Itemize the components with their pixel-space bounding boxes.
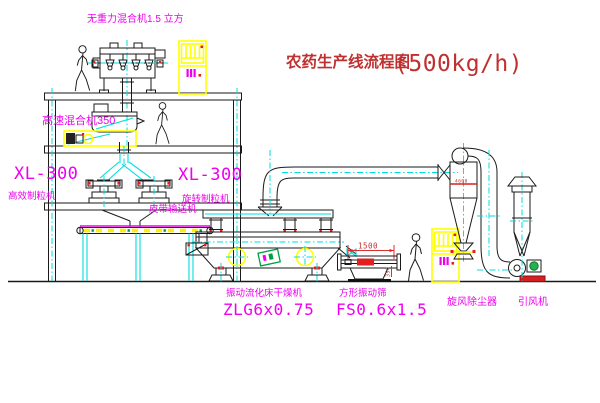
control-cabinet-lower: [432, 229, 459, 282]
label-high-speed-mixer: 高速混合机350: [42, 113, 115, 127]
label-cyclone: 旋风除尘器: [447, 295, 497, 308]
worker-figure-top-floor: [75, 46, 89, 91]
label-dryer-model: ZLG6x0.75: [223, 300, 314, 319]
granulator-left: [86, 176, 122, 207]
screen-length-dim: 1500: [358, 242, 378, 251]
cyclone-mark-text: 4600: [455, 179, 468, 185]
label-screen-name: 方形振动筛: [339, 287, 387, 299]
label-screen-model: FS0.6x1.5: [336, 300, 427, 319]
downcomer-duct: [477, 150, 514, 278]
label-granulator-right-model: XL-300: [178, 165, 242, 185]
worker-figure-ground: [409, 234, 424, 281]
label-granulator-left-name: 高效制粒机: [8, 190, 56, 202]
exhaust-elbow-duct: [258, 150, 294, 216]
label-fan: 引风机: [518, 295, 548, 308]
label-belt-conveyor: 皮带输送机: [149, 203, 197, 215]
under-floor-hopper: [102, 210, 156, 227]
cyclone-inlet-duct: [282, 164, 458, 181]
flow-diagram-page: 1500 350 4600: [0, 0, 600, 403]
granulator-right: [136, 176, 172, 207]
belt-conveyor: [77, 226, 213, 281]
page-title-capacity: (500kg/h): [394, 51, 523, 77]
vibrating-screen: 1500 350: [338, 242, 401, 283]
label-gravity-mixer: 无重力混合机1.5 立方: [87, 12, 184, 25]
fluid-bed-dryer: [192, 210, 356, 283]
control-cabinet-upper: [179, 41, 206, 94]
label-granulator-left-model: XL-300: [14, 164, 78, 184]
label-dryer-name: 振动流化床干燥机: [226, 287, 303, 299]
page-title: 农药生产线流程图: [285, 52, 410, 71]
induced-draft-fan: [509, 260, 546, 282]
screen-height-dim: 350: [386, 266, 392, 277]
diagram-canvas: 1500 350 4600: [0, 0, 600, 403]
worker-figure-second-floor: [156, 103, 169, 145]
